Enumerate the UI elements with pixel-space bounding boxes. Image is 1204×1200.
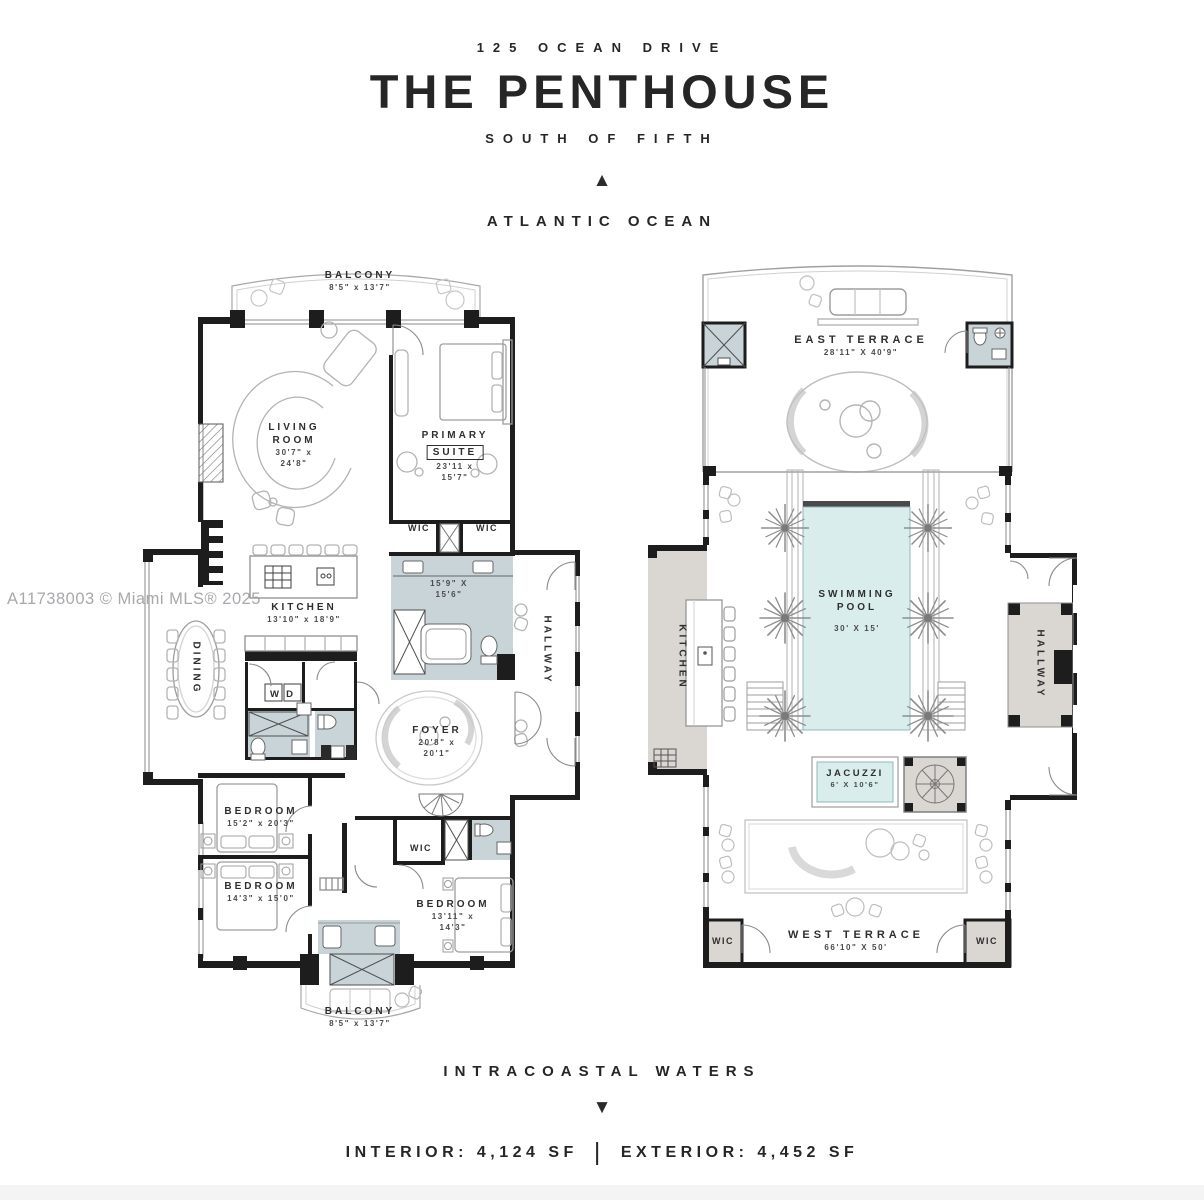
room-label-balcony-south: BALCONY 8'5" x 13'7" [325, 1005, 395, 1029]
roof-spiral-stair-icon [916, 765, 954, 803]
address-line: 125 OCEAN DRIVE [0, 40, 1204, 55]
bottom-edge-strip [0, 1185, 1204, 1200]
palm-tree-icon [904, 504, 952, 552]
palm-tree-icon [761, 504, 809, 552]
mls-watermark: A11738003 © Miami MLS® 2025 [7, 590, 261, 609]
room-label-foyer: FOYER 20'8" x 20'1" [412, 724, 461, 759]
area-summary: INTERIOR: 4,124 SF|EXTERIOR: 4,452 SF [0, 1135, 1204, 1164]
room-label-wic-terrace-right: WIC [976, 936, 998, 947]
room-label-swimming-pool: SWIMMING POOL 30' X 15' [818, 588, 895, 634]
room-label-hallway-terrace: HALLWAY [1035, 630, 1046, 699]
subtitle: SOUTH OF FIFTH [0, 131, 1204, 146]
east-terrace-outline [703, 266, 1012, 472]
room-label-bedroom-3: BEDROOM 13'11" x 14'3" [416, 898, 489, 933]
room-label-west-terrace: WEST TERRACE 66'10" X 50' [788, 928, 924, 953]
room-label-east-terrace: EAST TERRACE 28'11" X 40'9" [794, 333, 928, 358]
property-title: THE PENTHOUSE [0, 64, 1204, 119]
room-label-primary-bath: 15'9" X 15'6" [430, 578, 468, 600]
room-label-bedroom-1: BEDROOM 15'2" x 20'3" [224, 805, 297, 829]
room-label-bedroom-2: BEDROOM 14'3" x 15'0" [224, 880, 297, 904]
spiral-stair-icon [419, 794, 463, 816]
room-label-kitchen-terrace: KITCHEN [677, 624, 688, 689]
north-arrow-icon: ▲ [0, 170, 1204, 192]
floorplan-page: 125 OCEAN DRIVE THE PENTHOUSE SOUTH OF F… [0, 0, 1204, 1200]
room-label-jacuzzi: JACUZZI 6' X 10'6" [826, 768, 884, 790]
intracoastal-label: INTRACOASTAL WATERS [0, 1063, 1204, 1080]
room-label-primary-suite: PRIMARY SUITE 23'11 x 15'7" [422, 429, 489, 483]
room-label-living-room: LIVING ROOM 30'7" x 24'8" [268, 421, 319, 469]
room-label-balcony-north: BALCONY 8'5" x 13'7" [325, 269, 395, 293]
south-arrow-icon: ▼ [0, 1097, 1204, 1119]
atlantic-ocean-label: ATLANTIC OCEAN [0, 213, 1204, 230]
interior-area-label: INTERIOR: 4,124 SF [346, 1144, 578, 1161]
room-label-wic-right: WIC [476, 523, 498, 534]
floorplan-main-level [137, 258, 607, 1068]
room-label-wic-3: WIC [410, 843, 432, 854]
fireplace-hatch [199, 424, 223, 482]
room-label-wic-left: WIC [408, 523, 430, 534]
area-separator: | [578, 1138, 621, 1166]
room-label-dining: DINING [191, 642, 202, 695]
room-label-hallway-main: HALLWAY [542, 616, 553, 685]
room-label-kitchen-main: KITCHEN 13'10" x 18'9" [267, 601, 341, 625]
exterior-area-label: EXTERIOR: 4,452 SF [621, 1144, 859, 1161]
room-label-wic-terrace-left: WIC [712, 936, 734, 947]
room-label-washer-dryer: W D [267, 687, 297, 702]
